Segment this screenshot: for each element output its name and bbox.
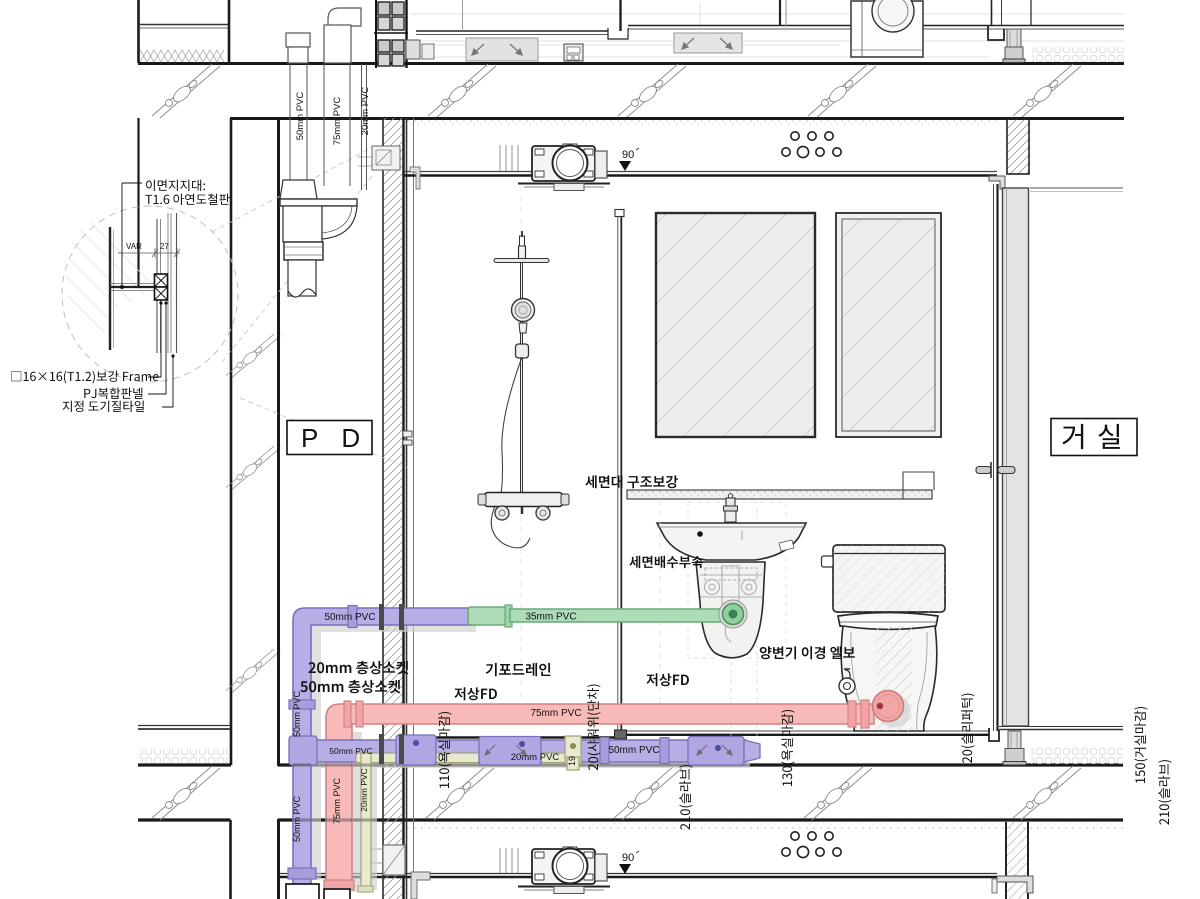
svg-text:75mm PVC: 75mm PVC [332, 777, 342, 824]
svg-text:75mm PVC: 75mm PVC [332, 97, 343, 146]
svg-text:75mm PVC: 75mm PVC [530, 708, 581, 719]
svg-text:50mm PVC: 50mm PVC [608, 745, 659, 756]
svg-text:20mm PVC: 20mm PVC [360, 87, 371, 136]
svg-text:19: 19 [567, 756, 577, 766]
svg-text:20mm PVC: 20mm PVC [511, 752, 560, 763]
svg-text:50mm PVC: 50mm PVC [329, 746, 372, 756]
svg-text:20mm PVC: 20mm PVC [359, 768, 369, 811]
svg-text:50mm PVC: 50mm PVC [324, 612, 375, 623]
svg-text:50mm PVC: 50mm PVC [295, 92, 306, 141]
svg-text:VAR: VAR [126, 242, 142, 251]
svg-text:50mm PVC: 50mm PVC [292, 690, 302, 737]
svg-text:50mm PVC: 50mm PVC [292, 795, 302, 842]
svg-text:27: 27 [160, 242, 169, 251]
svg-text:35mm PVC: 35mm PVC [525, 612, 576, 623]
svg-text:PD: PD [301, 423, 383, 453]
